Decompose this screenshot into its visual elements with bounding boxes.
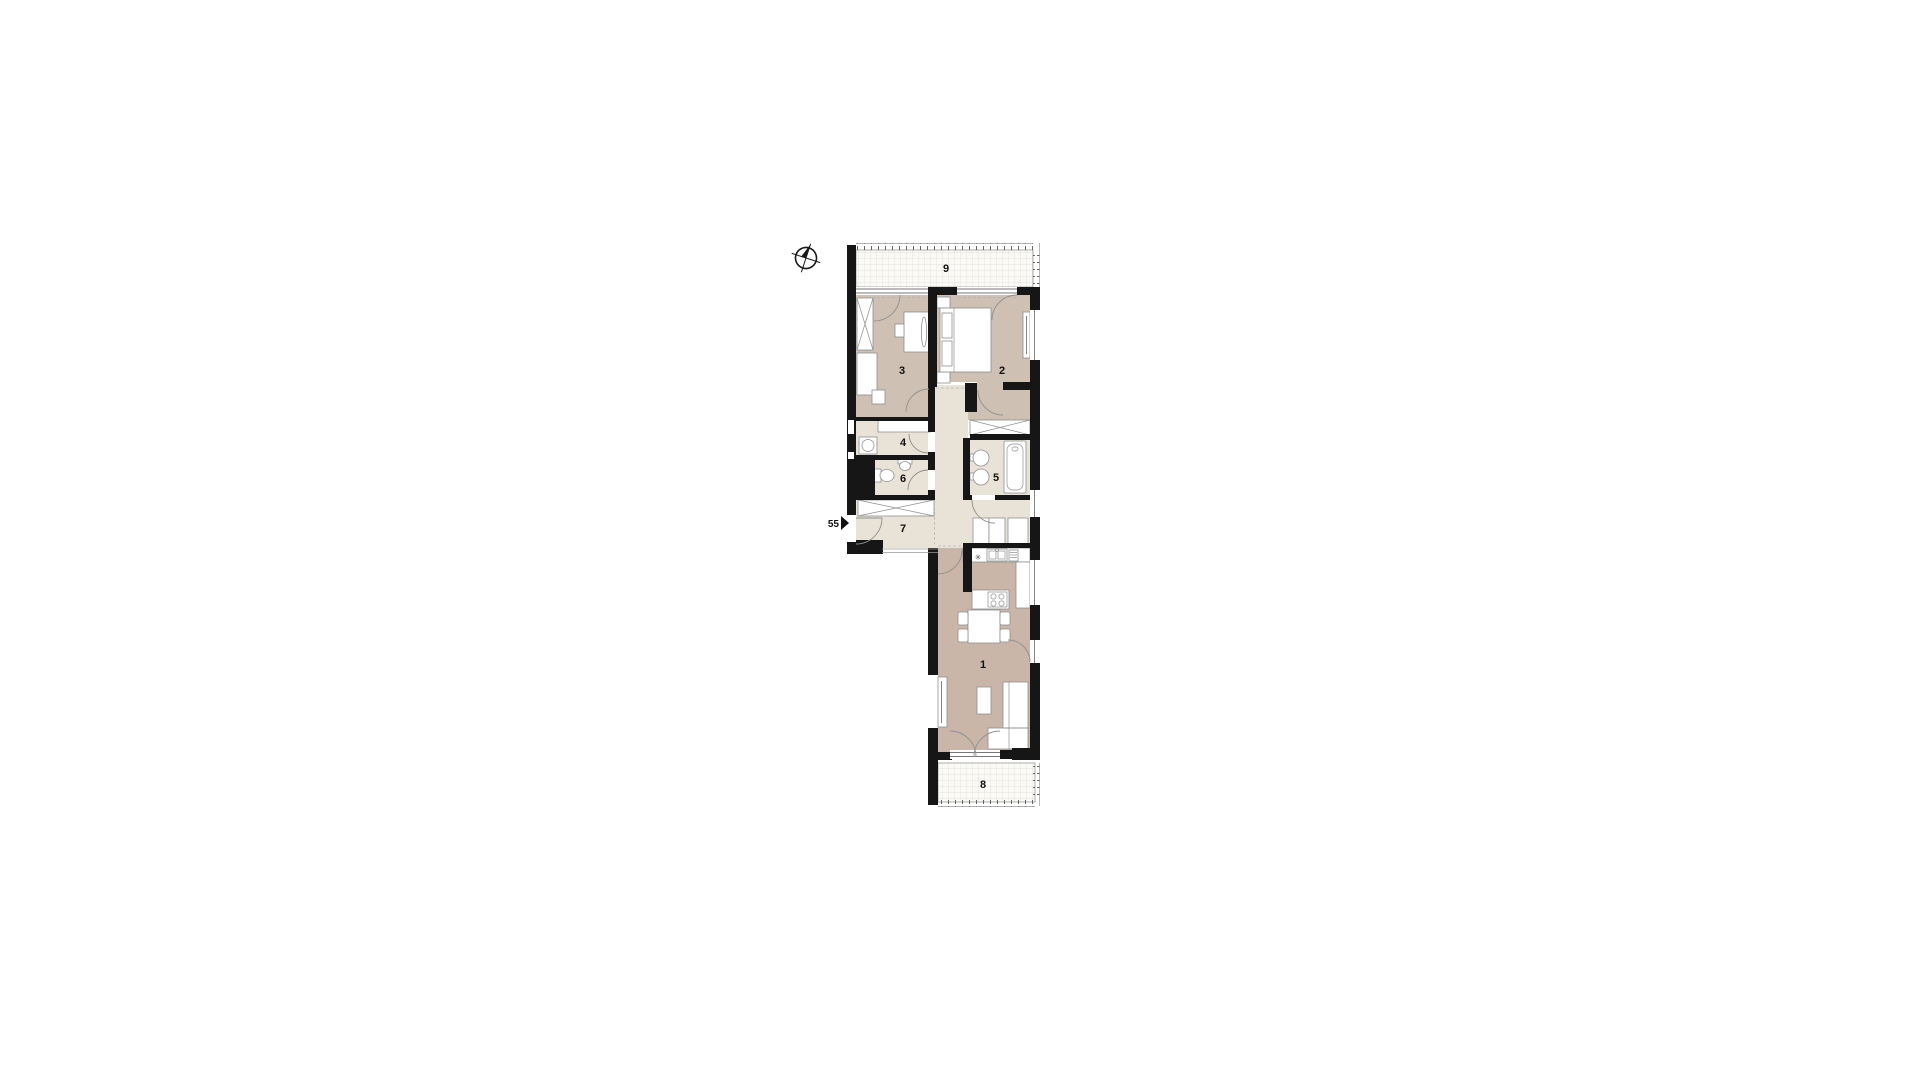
room-label-5: 5	[993, 472, 999, 484]
washing-machine	[859, 437, 877, 454]
chair	[872, 390, 885, 404]
room-label-8: 8	[980, 779, 986, 791]
entrance-opening	[847, 515, 856, 542]
bathtub	[1004, 441, 1026, 493]
toilet	[874, 469, 894, 482]
corridor-window	[1030, 490, 1040, 517]
unit-number-label: 55	[828, 519, 840, 530]
kitchen-window	[1030, 560, 1040, 605]
entrance-marker: 55	[828, 516, 849, 530]
floor-plan-page: ✳	[0, 0, 1920, 1080]
bed-double	[937, 297, 991, 383]
wall-niche	[848, 420, 854, 434]
room-label-2: 2	[999, 365, 1005, 377]
balcony	[938, 763, 1040, 807]
balcony-railing	[938, 800, 1035, 807]
room-label-3: 3	[899, 365, 905, 377]
terrace-window-left	[856, 287, 928, 295]
living-room-window	[928, 675, 947, 728]
wardrobe	[857, 298, 873, 350]
living-room-side-door-opening	[1030, 640, 1040, 663]
drainer	[1009, 550, 1018, 561]
dresser	[857, 353, 877, 395]
room-label-9: 9	[943, 263, 949, 275]
room-label-1: 1	[980, 659, 986, 671]
bedroom-2-window	[1030, 310, 1040, 360]
coffee-table	[977, 687, 991, 714]
terrace-window-right	[957, 287, 1017, 295]
room-label-6: 6	[900, 473, 906, 485]
compass-icon	[787, 239, 825, 277]
wall-niche	[848, 452, 854, 459]
built-in-closet	[970, 420, 1030, 435]
counter	[878, 420, 930, 432]
room-label-4: 4	[900, 437, 907, 449]
room-label-7: 7	[900, 523, 906, 535]
corridor-cabinets	[973, 518, 1028, 544]
hall-wardrobe	[858, 500, 934, 516]
kitchen-sink	[987, 549, 1007, 561]
extractor-symbol: ✳	[975, 553, 982, 562]
terrace-railing	[856, 243, 1033, 250]
floor-plan-drawing: ✳	[0, 0, 1920, 1080]
